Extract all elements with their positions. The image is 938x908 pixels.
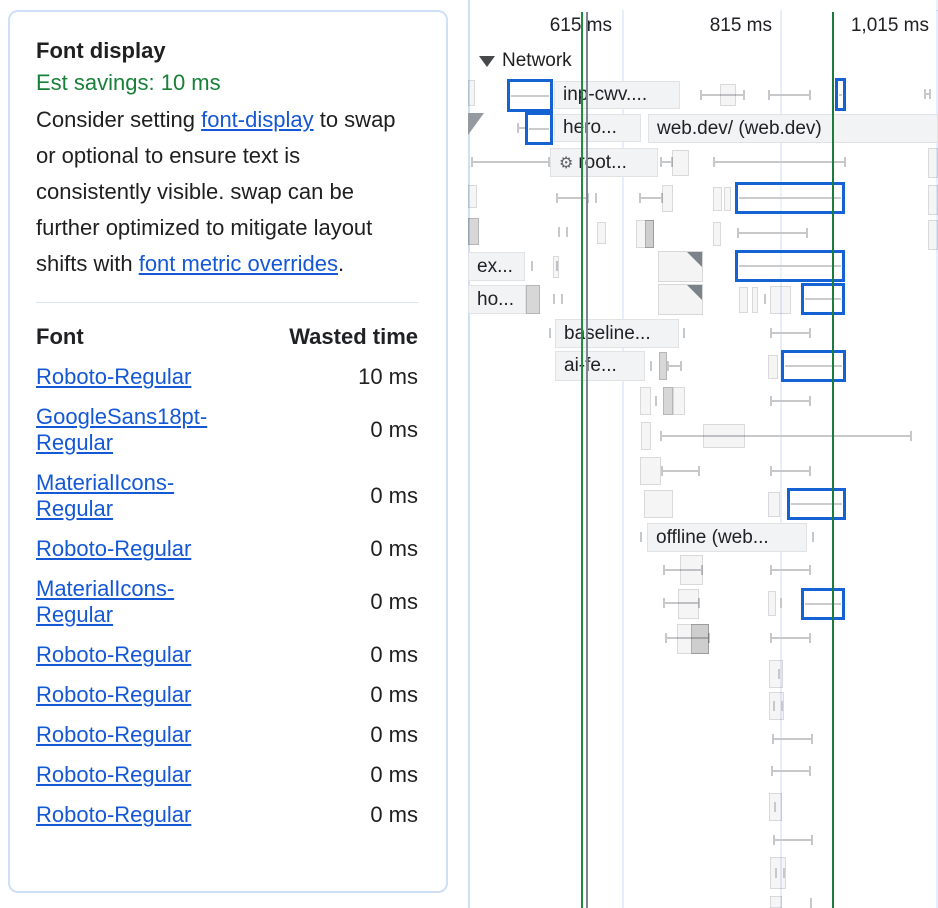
request-tick (774, 802, 776, 812)
font-cell: MaterialIcons-Regular (36, 463, 236, 529)
description-link[interactable]: font-display (201, 107, 314, 132)
font-cell: Roboto-Regular (36, 795, 236, 835)
request-whisker (667, 361, 682, 371)
wasted-time-value: 0 ms (236, 675, 418, 715)
highlighted-request-box[interactable] (801, 588, 845, 620)
font-table-row: MaterialIcons-Regular0 ms (36, 463, 418, 529)
request-whisker (639, 193, 663, 203)
timeline-marker-line (581, 12, 583, 908)
request-tick (595, 193, 597, 203)
request-tick (812, 532, 814, 542)
network-request-bar[interactable] (703, 424, 745, 448)
request-duration-line (805, 298, 841, 300)
request-label-chip[interactable]: hero... (554, 114, 641, 142)
font-source-link[interactable]: Roboto-Regular (36, 682, 191, 707)
font-table-row: Roboto-Regular0 ms (36, 715, 418, 755)
request-label-chip[interactable]: offline (web... (647, 523, 807, 552)
wasted-time-value: 10 ms (236, 357, 418, 397)
network-request-bar[interactable] (468, 185, 477, 208)
network-request-bar[interactable] (928, 185, 938, 215)
font-source-link[interactable]: Roboto-Regular (36, 802, 191, 827)
highlighted-request-box[interactable] (801, 283, 845, 315)
description-text: Consider setting (36, 107, 201, 132)
network-request-chip-folded[interactable] (658, 284, 703, 315)
description-text: . (338, 251, 344, 276)
request-tick (650, 361, 652, 371)
request-duration-line (791, 503, 842, 505)
wasted-time-value: 0 ms (236, 755, 418, 795)
request-label-text: ai-fe... (564, 355, 617, 377)
network-request-bar[interactable] (597, 222, 606, 244)
network-request-bar[interactable] (713, 222, 721, 246)
network-request-bar[interactable] (640, 457, 661, 485)
request-duration-line (739, 197, 841, 199)
font-cell: MaterialIcons-Regular (36, 569, 236, 635)
network-request-bar[interactable] (672, 150, 689, 176)
request-tick (783, 868, 785, 878)
network-request-bar[interactable] (468, 80, 475, 106)
network-request-bar[interactable] (680, 555, 703, 585)
network-request-bar[interactable] (752, 287, 758, 313)
ruler-label: 1,015 ms (468, 13, 929, 39)
request-label-chip[interactable]: ⚙root... (550, 148, 658, 177)
request-label-chip[interactable]: ho... (468, 285, 526, 314)
font-table-row: GoogleSans18pt-Regular0 ms (36, 397, 418, 463)
wasted-time-column-header: Wasted time (236, 315, 418, 357)
request-whisker (924, 89, 931, 99)
font-cell: Roboto-Regular (36, 755, 236, 795)
request-label-text: offline (web... (656, 527, 769, 549)
request-label-text: hero... (563, 117, 617, 139)
network-request-bar[interactable] (644, 490, 673, 518)
audit-estimated-savings: Est savings: 10 ms (36, 66, 418, 100)
audit-title: Font display (36, 36, 418, 66)
font-column-header: Font (36, 315, 236, 357)
wasted-time-value: 0 ms (236, 715, 418, 755)
network-request-bar[interactable] (640, 387, 651, 415)
network-request-bar[interactable] (720, 84, 736, 106)
font-source-link[interactable]: Roboto-Regular (36, 762, 191, 787)
request-tick (810, 898, 812, 908)
request-duration-line (839, 94, 842, 96)
request-tick (553, 294, 555, 304)
request-whisker (737, 228, 808, 238)
font-source-link[interactable]: MaterialIcons-Regular (36, 470, 174, 521)
highlighted-request-box[interactable] (781, 350, 846, 382)
network-request-bar[interactable] (468, 218, 479, 245)
request-tick (566, 227, 568, 237)
request-duration-line (739, 265, 841, 267)
wasted-time-value: 0 ms (236, 795, 418, 835)
highlighted-request-box[interactable] (507, 79, 553, 112)
font-display-audit-card: Font display Est savings: 10 ms Consider… (8, 10, 448, 893)
network-track-header[interactable]: Network (479, 49, 572, 73)
network-request-bar[interactable] (768, 591, 776, 616)
font-cell: Roboto-Regular (36, 357, 236, 397)
request-whisker (770, 565, 811, 575)
network-request-bar[interactable] (768, 355, 778, 379)
request-whisker (471, 157, 550, 167)
request-label-text: inp-cwv.... (563, 84, 647, 106)
network-request-bar[interactable] (645, 220, 654, 248)
gear-icon: ⚙ (559, 153, 573, 173)
timeline-marker-line (832, 12, 834, 908)
network-request-bar[interactable] (663, 387, 673, 415)
request-label-text: ex... (477, 256, 513, 278)
network-request-bar[interactable] (553, 256, 559, 278)
request-whisker (556, 193, 589, 203)
request-label-chip[interactable]: inp-cwv.... (554, 81, 680, 109)
font-source-link[interactable]: MaterialIcons-Regular (36, 576, 174, 627)
request-label-chip[interactable]: ex... (468, 252, 525, 281)
request-label-text: ho... (477, 289, 514, 311)
network-request-bar[interactable] (928, 148, 938, 178)
font-source-link[interactable]: Roboto-Regular (36, 364, 191, 389)
network-request-bar[interactable] (662, 185, 673, 212)
request-duration-line (511, 95, 549, 97)
request-whisker (660, 431, 912, 441)
network-request-bar[interactable] (673, 387, 685, 415)
request-arrow-icon (468, 113, 484, 135)
divider (36, 302, 418, 303)
request-whisker (770, 633, 811, 643)
request-tick (780, 598, 782, 608)
network-request-bar[interactable] (928, 220, 938, 250)
font-source-link[interactable]: Roboto-Regular (36, 722, 191, 747)
network-request-bar[interactable] (770, 286, 791, 314)
timeline-gridline (622, 10, 624, 908)
font-source-link[interactable]: GoogleSans18pt-Regular (36, 404, 207, 455)
fonts-table: Font Wasted time Roboto-Regular10 msGoog… (36, 315, 418, 835)
network-request-bar[interactable] (739, 287, 748, 313)
wasted-time-value: 0 ms (236, 529, 418, 569)
request-tick (640, 532, 642, 542)
request-whisker (661, 466, 700, 476)
request-whisker (768, 90, 811, 100)
collapse-triangle-icon[interactable] (479, 56, 495, 67)
font-table-row: Roboto-Regular10 ms (36, 357, 418, 397)
request-label-text: baseline... (564, 323, 651, 345)
network-request-bar[interactable] (724, 187, 731, 211)
font-table-row: Roboto-Regular0 ms (36, 675, 418, 715)
network-request-bar[interactable] (678, 589, 699, 619)
font-source-link[interactable]: Roboto-Regular (36, 642, 191, 667)
font-source-link[interactable]: Roboto-Regular (36, 536, 191, 561)
wasted-time-value: 0 ms (236, 397, 418, 463)
request-tick (764, 294, 766, 304)
request-tick (549, 328, 551, 338)
request-whisker (771, 766, 811, 776)
fonts-table-header-row: Font Wasted time (36, 315, 418, 357)
font-table-row: Roboto-Regular0 ms (36, 755, 418, 795)
font-table-row: Roboto-Regular0 ms (36, 635, 418, 675)
request-tick (773, 701, 775, 711)
font-table-row: Roboto-Regular0 ms (36, 795, 418, 835)
font-table-row: MaterialIcons-Regular0 ms (36, 569, 418, 635)
request-whisker (770, 396, 811, 406)
request-tick (778, 669, 780, 679)
font-cell: Roboto-Regular (36, 635, 236, 675)
wasted-time-value: 0 ms (236, 635, 418, 675)
network-request-bar[interactable] (641, 422, 651, 450)
font-cell: Roboto-Regular (36, 715, 236, 755)
request-whisker (713, 157, 846, 167)
request-tick (781, 701, 783, 711)
request-tick (531, 261, 533, 271)
font-table-row: Roboto-Regular0 ms (36, 529, 418, 569)
request-duration-line (529, 128, 549, 130)
track-name: Network (502, 50, 572, 72)
request-tick (775, 868, 777, 878)
highlighted-request-box[interactable] (735, 250, 845, 282)
request-label-text: web.dev/ (web.dev) (657, 118, 822, 140)
request-label-chip[interactable]: web.dev/ (web.dev) (648, 114, 938, 143)
request-whisker (770, 328, 811, 338)
network-request-bar[interactable] (770, 896, 782, 908)
network-request-bar[interactable] (659, 352, 667, 380)
wasted-time-value: 0 ms (236, 569, 418, 635)
request-label-chip[interactable]: ai-fe... (555, 351, 645, 381)
font-cell: Roboto-Regular (36, 675, 236, 715)
request-tick (683, 328, 685, 338)
highlighted-request-box[interactable] (735, 182, 845, 214)
request-whisker (772, 734, 813, 744)
request-label-chip[interactable]: baseline... (555, 319, 679, 348)
highlighted-request-box[interactable] (525, 112, 553, 145)
request-whisker (770, 466, 811, 476)
audit-description: Consider setting font-display to swap or… (36, 102, 418, 282)
network-request-bar[interactable] (691, 624, 709, 654)
request-tick (561, 294, 563, 304)
font-cell: Roboto-Regular (36, 529, 236, 569)
description-link[interactable]: font metric overrides (139, 251, 338, 276)
font-cell: GoogleSans18pt-Regular (36, 397, 236, 463)
request-whisker (773, 835, 813, 845)
highlighted-request-box[interactable] (787, 488, 846, 520)
highlighted-request-box[interactable] (835, 78, 846, 111)
timeline-marker-line (586, 12, 588, 908)
network-request-chip-folded[interactable] (658, 251, 703, 282)
request-duration-line (805, 603, 841, 605)
request-tick (558, 227, 560, 237)
request-tick (655, 396, 657, 406)
network-request-bar[interactable] (526, 285, 540, 314)
wasted-time-value: 0 ms (236, 463, 418, 529)
network-request-bar[interactable] (769, 660, 783, 688)
network-request-bar[interactable] (768, 492, 780, 517)
network-request-bar[interactable] (713, 187, 722, 211)
